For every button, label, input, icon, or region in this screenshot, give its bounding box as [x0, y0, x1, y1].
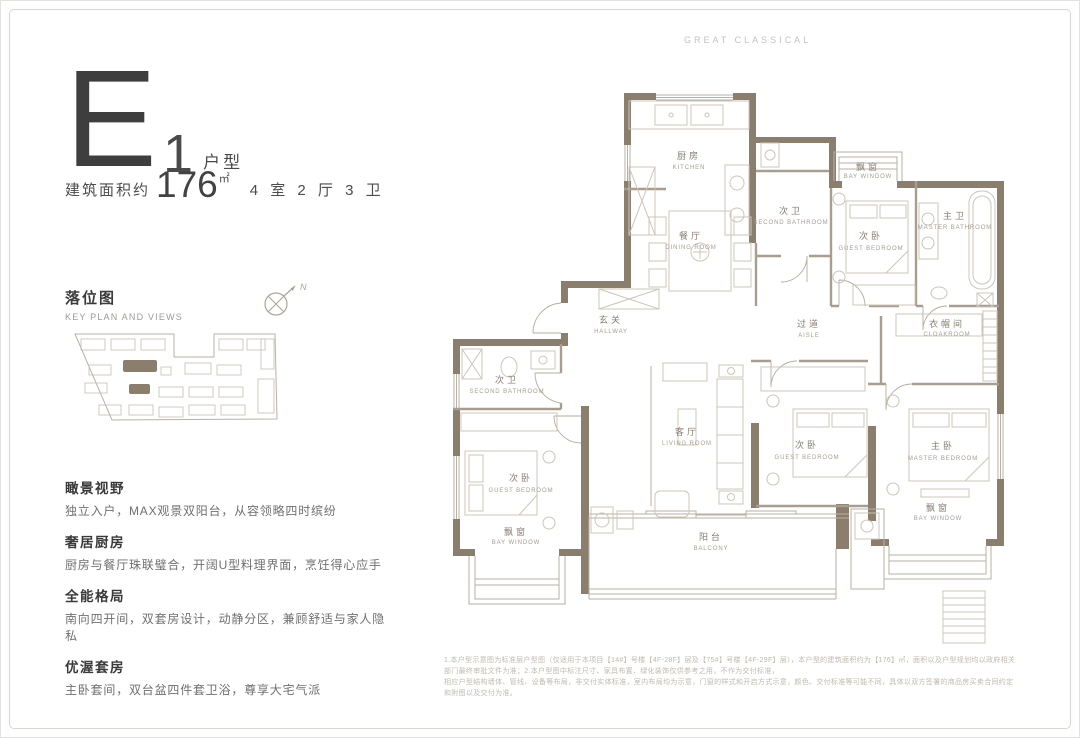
feature-desc: 主卧套间，双台盆四件套卫浴，尊享大宅气派	[65, 681, 395, 698]
svg-text:厨房: 厨房	[677, 150, 701, 161]
feature-desc: 南向四开间，双套房设计，动静分区，兼顾舒适与家人隐私	[65, 610, 395, 644]
svg-text:GUEST BEDROOM: GUEST BEDROOM	[839, 246, 904, 252]
feature-desc: 厨房与餐厅珠联璧合，开阔U型料理界面，烹饪得心应手	[65, 556, 395, 573]
room-label-bay-window-left: 飘窗 BAY WINDOW	[492, 526, 540, 546]
feature-desc: 独立入户，MAX观景双阳台，从容领略四时缤纷	[65, 502, 395, 519]
key-plan-map	[65, 331, 317, 449]
room-label-guest-bedroom-mid: 次卧 GUEST BEDROOM	[775, 439, 840, 461]
feature-list: 瞰景视野 独立入户，MAX观景双阳台，从容领略四时缤纷 奢居厨房 厨房与餐厅珠联…	[65, 477, 395, 710]
feature-item: 瞰景视野 独立入户，MAX观景双阳台，从容领略四时缤纷	[65, 477, 395, 519]
room-label-dining: 餐厅 DINING ROOM	[665, 230, 716, 251]
feature-title: 全能格局	[65, 585, 395, 605]
plan-balcony-rails	[589, 511, 849, 599]
disclaimer: 1.本户型示意图为标准层户型图（仅适用于本项目【14#】号楼【4F-28F】层及…	[444, 656, 1016, 699]
area-line: 建筑面积约 176 ㎡ 4 室 2 厅 3 卫	[65, 169, 385, 200]
compass-icon: N	[257, 279, 309, 323]
svg-text:衣帽间: 衣帽间	[929, 318, 965, 329]
svg-text:次卧: 次卧	[509, 472, 533, 483]
key-plan-title: 落位图	[65, 287, 183, 308]
room-label-living-room: 客厅 LIVING ROOM	[662, 426, 712, 447]
unit-title: E 1 户型	[65, 63, 243, 176]
svg-text:DINING ROOM: DINING ROOM	[665, 245, 716, 251]
feature-item: 全能格局 南向四开间，双套房设计，动静分区，兼顾舒适与家人隐私	[65, 585, 395, 644]
disclaimer-line: 1.本户型示意图为标准层户型图（仅适用于本项目【14#】号楼【4F-28F】层及…	[444, 656, 1016, 678]
svg-text:BAY WINDOW: BAY WINDOW	[914, 516, 962, 522]
site-buildings	[81, 339, 274, 417]
svg-text:BALCONY: BALCONY	[694, 546, 729, 552]
svg-text:飘窗: 飘窗	[926, 502, 950, 513]
svg-text:HALLWAY: HALLWAY	[594, 329, 628, 335]
svg-text:次卧: 次卧	[795, 439, 819, 450]
area-prefix: 建筑面积约	[65, 179, 150, 200]
furniture-master-bath	[919, 191, 995, 307]
svg-text:飘窗: 飘窗	[504, 526, 528, 537]
svg-text:玄关: 玄关	[599, 314, 623, 325]
svg-text:KITCHEN: KITCHEN	[673, 165, 706, 171]
brand-text: GREAT CLASSICAL	[684, 35, 811, 45]
feature-item: 奢居厨房 厨房与餐厅珠联璧合，开阔U型料理界面，烹饪得心应手	[65, 531, 395, 573]
room-label-bay-window-top: 飘窗 BAY WINDOW	[844, 161, 892, 180]
disclaimer-line: 相应户型结构墙体、管线、设备等布局，非交付实体标准，室内布局均为示意，门窗的样式…	[444, 678, 1016, 700]
brochure-page: GREAT CLASSICAL E 1 户型 建筑面积约 176 ㎡ 4 室 2…	[0, 0, 1080, 738]
furniture-left-wardrobe	[461, 413, 557, 431]
svg-text:次卫: 次卫	[495, 374, 519, 385]
svg-text:AISLE: AISLE	[798, 333, 820, 339]
svg-text:餐厅: 餐厅	[679, 230, 703, 241]
plan-walls-interior	[453, 171, 999, 589]
furniture-dining-set	[649, 211, 751, 291]
room-label-bay-window-right: 飘窗 BAY WINDOW	[914, 502, 962, 522]
svg-text:GUEST BEDROOM: GUEST BEDROOM	[489, 488, 554, 494]
svg-text:BAY WINDOW: BAY WINDOW	[844, 174, 892, 180]
svg-text:MASTER BATHROOM: MASTER BATHROOM	[918, 225, 992, 231]
stair-hatch	[943, 591, 985, 643]
svg-text:次卫: 次卫	[779, 205, 803, 216]
room-label-master-bedroom: 主卧 MASTER BEDROOM	[908, 440, 978, 462]
svg-text:MASTER BEDROOM: MASTER BEDROOM	[908, 456, 978, 462]
room-label-guest-bedroom-top: 次卧 GUEST BEDROOM	[839, 230, 904, 252]
rooms-count: 4 室 2 厅 3 卫	[250, 179, 385, 200]
svg-text:次卧: 次卧	[859, 230, 883, 241]
furniture-balcony	[591, 507, 879, 539]
area-value: 176	[156, 169, 218, 200]
room-label-hallway: 玄关 HALLWAY	[594, 314, 628, 335]
feature-item: 优渥套房 主卧套间，双台盆四件套卫浴，尊享大宅气派	[65, 656, 395, 698]
svg-text:过道: 过道	[797, 318, 821, 329]
furniture-hall-cabinet	[599, 289, 659, 309]
svg-text:BAY WINDOW: BAY WINDOW	[492, 540, 540, 546]
feature-title: 瞰景视野	[65, 477, 395, 497]
feature-title: 优渥套房	[65, 656, 395, 676]
room-label-guest-bedroom-left: 次卧 GUEST BEDROOM	[489, 472, 554, 494]
feature-title: 奢居厨房	[65, 531, 395, 551]
svg-text:CLOAKROOM: CLOAKROOM	[923, 332, 970, 338]
svg-text:主卧: 主卧	[931, 440, 955, 451]
floor-plan: 厨房 KITCHEN 餐厅 DINING ROOM 次卫 SECOND BATH…	[441, 71, 1021, 656]
svg-text:客厅: 客厅	[675, 426, 699, 437]
key-plan-heading: 落位图 KEY PLAN AND VIEWS	[65, 287, 183, 322]
svg-text:阳台: 阳台	[699, 531, 723, 542]
svg-text:GUEST BEDROOM: GUEST BEDROOM	[775, 455, 840, 461]
room-label-aisle: 过道 AISLE	[797, 318, 821, 339]
svg-text:SECOND BATHROOM: SECOND BATHROOM	[469, 389, 544, 395]
furniture-living	[655, 363, 743, 517]
plan-bay-windows	[469, 152, 991, 604]
area-unit: ㎡	[219, 170, 230, 186]
room-label-second-bathroom-top: 次卫 SECOND BATHROOM	[753, 205, 828, 226]
svg-text:飘窗: 飘窗	[856, 161, 880, 172]
furniture-boiler	[761, 143, 779, 167]
compass-north-label: N	[300, 282, 307, 292]
unit-letter: E	[65, 63, 157, 176]
svg-text:SECOND BATHROOM: SECOND BATHROOM	[753, 220, 828, 226]
svg-text:LIVING ROOM: LIVING ROOM	[662, 441, 712, 447]
room-label-balcony: 阳台 BALCONY	[694, 531, 729, 552]
svg-text:主卫: 主卫	[943, 210, 967, 221]
room-label-kitchen: 厨房 KITCHEN	[673, 150, 706, 171]
highlighted-buildings	[123, 360, 157, 394]
room-label-cloakroom: 衣帽间 CLOAKROOM	[923, 318, 970, 338]
furniture-bed-mid	[761, 367, 867, 485]
key-plan-subtitle: KEY PLAN AND VIEWS	[65, 312, 183, 322]
